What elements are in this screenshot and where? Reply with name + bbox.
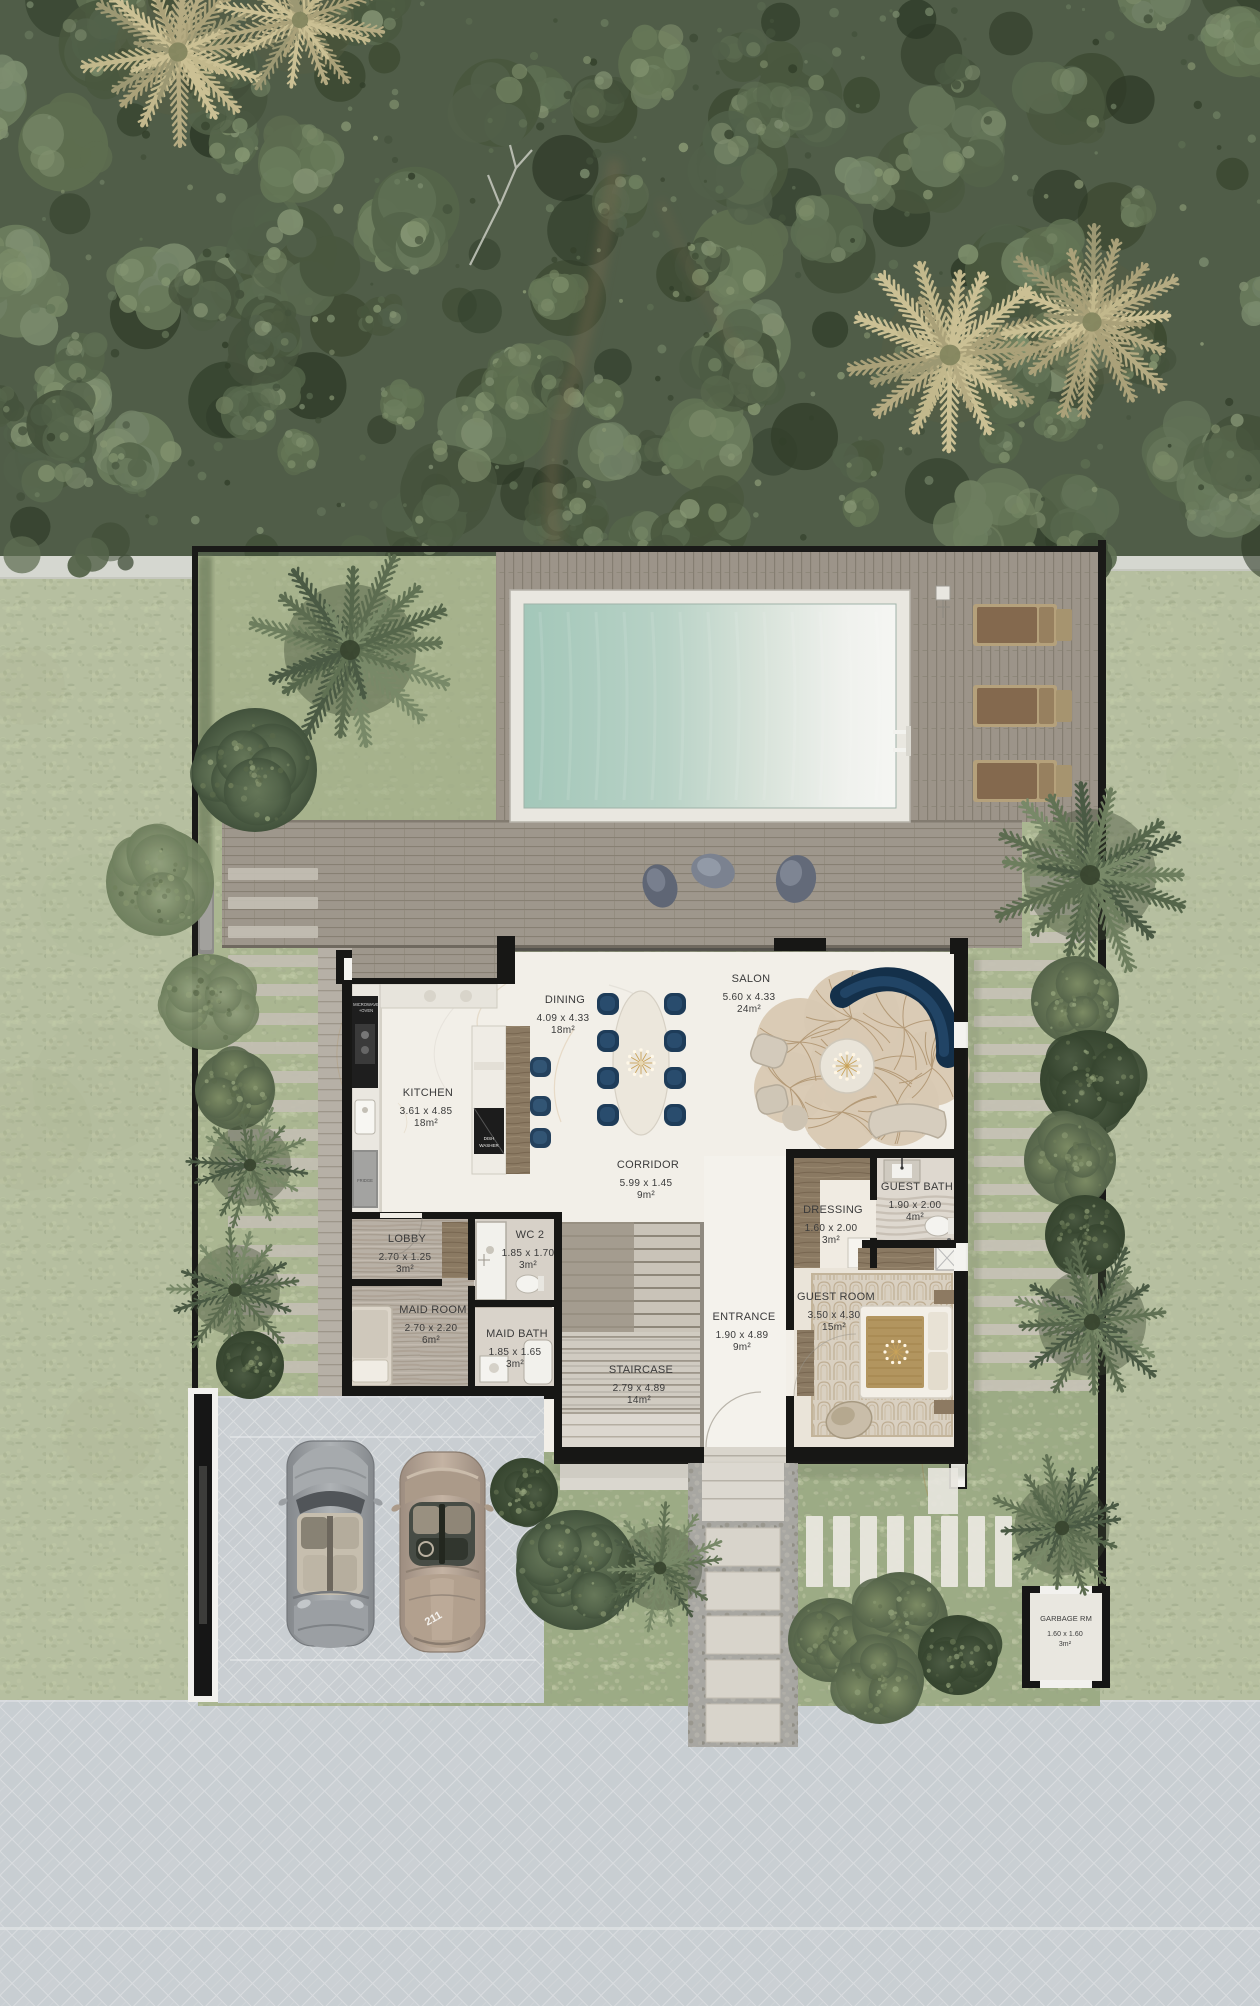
svg-text:KITCHEN: KITCHEN [403, 1087, 453, 1099]
svg-text:6m²: 6m² [422, 1335, 440, 1346]
svg-text:3m²: 3m² [519, 1260, 537, 1271]
svg-text:3.50 x 4.30: 3.50 x 4.30 [808, 1310, 861, 1321]
svg-text:1.90 x 4.89: 1.90 x 4.89 [716, 1330, 769, 1341]
svg-text:3.61 x 4.85: 3.61 x 4.85 [400, 1106, 453, 1117]
svg-text:1.85 x 1.65: 1.85 x 1.65 [489, 1347, 542, 1358]
svg-text:5.60 x 4.33: 5.60 x 4.33 [723, 992, 776, 1003]
svg-text:DISH: DISH [484, 1136, 495, 1141]
svg-text:LOBBY: LOBBY [388, 1233, 427, 1245]
svg-text:DRESSING: DRESSING [803, 1204, 863, 1216]
svg-text:4.09 x 4.33: 4.09 x 4.33 [537, 1013, 590, 1024]
svg-text:FRIDGE: FRIDGE [357, 1178, 373, 1183]
svg-text:3m²: 3m² [822, 1235, 840, 1246]
svg-text:18m²: 18m² [551, 1025, 575, 1036]
svg-text:DINING: DINING [545, 994, 585, 1006]
svg-text:3m²: 3m² [1059, 1641, 1072, 1648]
svg-text:MAID ROOM: MAID ROOM [399, 1304, 466, 1316]
svg-text:3m²: 3m² [396, 1264, 414, 1275]
svg-text:4m²: 4m² [906, 1212, 924, 1223]
svg-text:1.60 x 2.00: 1.60 x 2.00 [805, 1223, 858, 1234]
svg-text:WC 2: WC 2 [516, 1229, 545, 1241]
svg-text:1.60 x 1.60: 1.60 x 1.60 [1047, 1631, 1083, 1638]
svg-text:GARBAGE RM: GARBAGE RM [1040, 1614, 1092, 1623]
svg-text:3m²: 3m² [506, 1359, 524, 1370]
svg-text:MAID BATH: MAID BATH [486, 1328, 548, 1340]
svg-text:WASHER: WASHER [479, 1143, 499, 1148]
svg-text:9m²: 9m² [637, 1190, 655, 1201]
svg-text:CORRIDOR: CORRIDOR [617, 1159, 679, 1171]
svg-text:SALON: SALON [732, 973, 771, 985]
svg-text:GUEST ROOM: GUEST ROOM [797, 1291, 875, 1303]
svg-text:9m²: 9m² [733, 1342, 751, 1353]
svg-text:15m²: 15m² [822, 1322, 846, 1333]
svg-text:STAIRCASE: STAIRCASE [609, 1364, 673, 1376]
svg-text:24m²: 24m² [737, 1004, 761, 1015]
svg-text:1.85 x 1.70: 1.85 x 1.70 [502, 1248, 555, 1259]
svg-text:1.90 x 2.00: 1.90 x 2.00 [889, 1200, 942, 1211]
svg-text:14m²: 14m² [627, 1395, 651, 1406]
svg-text:MICROWAVE: MICROWAVE [353, 1002, 379, 1007]
svg-text:GUEST BATH: GUEST BATH [881, 1181, 953, 1193]
svg-text:18m²: 18m² [414, 1118, 438, 1129]
svg-text:ENTRANCE: ENTRANCE [713, 1311, 776, 1323]
svg-text:+OVEN: +OVEN [359, 1008, 373, 1013]
svg-text:5.99 x 1.45: 5.99 x 1.45 [620, 1178, 673, 1189]
svg-text:2.70 x 2.20: 2.70 x 2.20 [405, 1323, 458, 1334]
svg-text:2.79 x 4.89: 2.79 x 4.89 [613, 1383, 666, 1394]
